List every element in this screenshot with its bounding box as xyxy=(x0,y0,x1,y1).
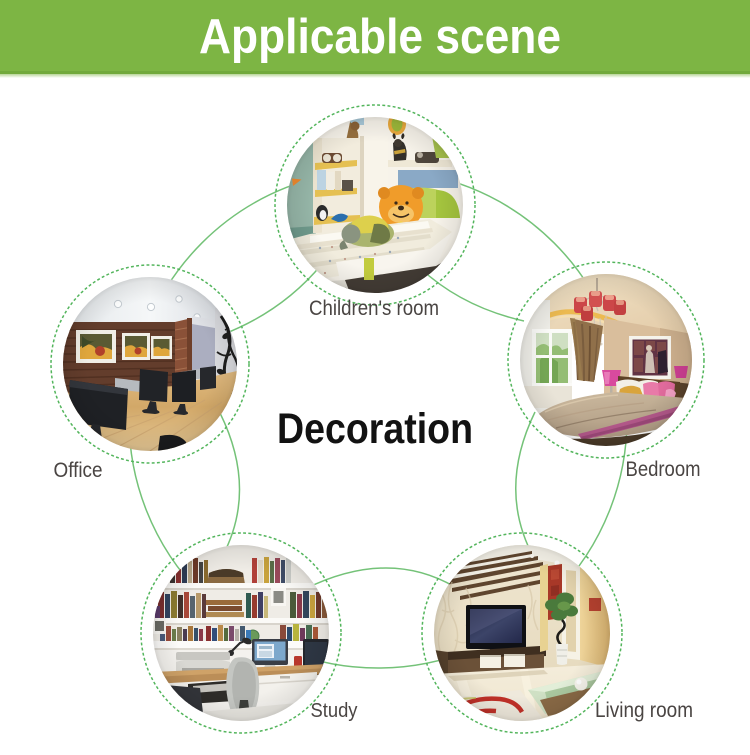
svg-text:Office: Office xyxy=(54,458,103,482)
svg-text:Children's room: Children's room xyxy=(309,296,439,320)
svg-text:Applicable scene: Applicable scene xyxy=(199,10,561,64)
svg-text:Living room: Living room xyxy=(595,699,693,722)
svg-text:Study: Study xyxy=(311,699,359,722)
svg-text:Decoration: Decoration xyxy=(277,405,473,453)
svg-text:Bedroom: Bedroom xyxy=(626,458,701,481)
